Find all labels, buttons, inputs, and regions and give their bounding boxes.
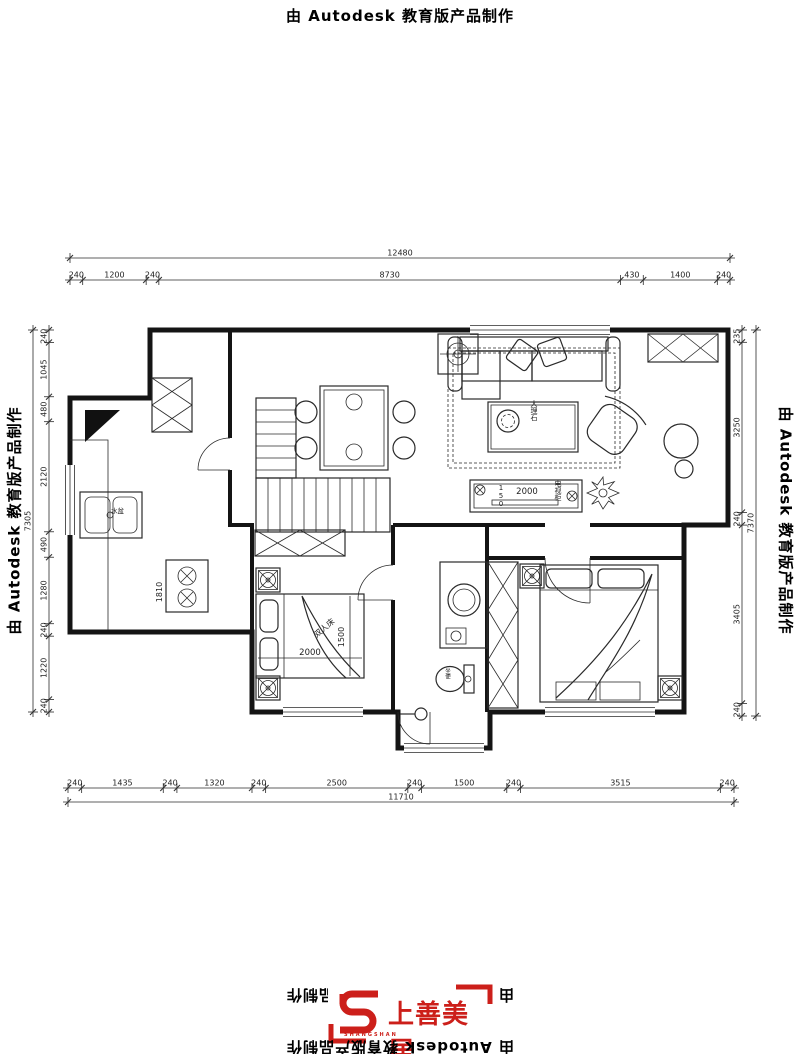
svg-text:240: 240 [40,698,49,713]
dim-left-segments: 2401045480212049012802401220240 [40,325,55,717]
ceiling-lamp-icon [658,676,682,700]
svg-text:1045: 1045 [40,359,49,379]
master-bedroom [488,562,682,708]
tea-table-label: 大理石 [530,399,538,422]
svg-text:11710: 11710 [388,793,413,802]
dim-bottom-segments: 24014352401320240250024015002403515240 [63,779,739,794]
svg-text:240: 240 [407,779,422,788]
vanity-icon [440,562,487,648]
ceiling-lamp-icon [256,676,280,700]
svg-text:8730: 8730 [380,271,400,280]
svg-text:240: 240 [162,779,177,788]
master-bed-icon [540,565,658,702]
tv-cabinet-depth: 150 [497,484,505,508]
svg-text:240: 240 [145,271,160,280]
svg-text:3405: 3405 [733,604,742,624]
svg-text:7305: 7305 [24,511,33,531]
dim-top-overall: 12480 [65,249,735,264]
svg-text:12480: 12480 [387,249,412,258]
window-bedroom1-bottom [283,706,363,718]
toilet-label: 坐便 [444,667,451,681]
tv-cabinet-width: 2000 [516,487,538,497]
kitchen-inner-dim: 1810 [155,582,164,602]
svg-text:240: 240 [716,271,731,280]
column-icon [438,334,478,374]
windows [64,324,655,754]
svg-text:1200: 1200 [104,271,124,280]
svg-text:240: 240 [251,779,266,788]
corner-marker-icon [85,410,120,442]
svg-text:240: 240 [69,271,84,280]
s-glyph [340,994,378,1030]
svg-text:240: 240 [733,702,742,717]
wardrobe-icon [488,562,518,708]
chair-icon [393,437,415,459]
svg-text:430: 430 [624,271,639,280]
bedroom1: 2000 1500 双人床 [255,530,364,700]
svg-text:1220: 1220 [40,658,49,678]
bathroom: 坐便 [436,562,487,693]
floor-lamp-icon [675,460,693,478]
bed1-depth: 1500 [337,627,346,647]
window-bath-bay [404,742,484,754]
svg-text:240: 240 [506,779,521,788]
exterior-walls [70,330,728,748]
closet-icon [255,530,345,556]
svg-text:7370: 7370 [747,513,756,533]
svg-text:240: 240 [720,779,735,788]
svg-text:2120: 2120 [40,467,49,487]
bath-bay-door [398,712,430,744]
window-kitchen-left [64,465,76,535]
svg-text:1400: 1400 [670,271,690,280]
drawing-sheet: 由 Autodesk 教育版产品制作 由 Autodesk 教育版产品制作 由 … [0,0,800,1054]
svg-text:240: 240 [40,622,49,637]
ceiling-lamp-icon [256,568,280,592]
svg-text:1280: 1280 [40,580,49,600]
window-master-bottom [545,706,655,718]
dim-left-overall: 7305 [24,325,39,717]
chair-icon [295,437,317,459]
svg-text:480: 480 [40,402,49,417]
living-room: 大理石 2000 150 电视柜 [438,334,718,512]
svg-text:240: 240 [67,779,82,788]
tv-cabinet-label: 电视柜 [554,479,562,502]
svg-text:240: 240 [40,329,49,344]
svg-text:1320: 1320 [204,779,224,788]
bedroom1-door [358,565,393,600]
svg-text:3515: 3515 [610,779,630,788]
svg-text:2500: 2500 [327,779,347,788]
svg-text:490: 490 [40,537,49,552]
plant-icon [587,477,619,509]
stove-icon [166,560,208,612]
chair-icon [295,401,317,423]
sink-icon [80,492,142,538]
closet-top-right-icon [648,334,718,362]
dining-set [295,386,415,470]
dim-right-overall: 7370 [747,325,762,721]
autodesk-banner-bottom-lower: 由 Autodesk 教育版产品制作 [0,1037,800,1054]
shangshan-logo: 上善美居 SHANGSHAN [328,984,494,1044]
dim-right-segments: 23532502403405240 [733,325,748,721]
kitchen: 水盆 1810 [70,378,208,630]
stairs [256,398,390,532]
tall-cabinet-icon [152,378,192,432]
door-handle-icon [400,708,427,720]
svg-text:240: 240 [733,511,742,526]
bed1-icon [256,594,364,678]
armchair-icon [580,392,649,461]
dim-bottom-overall: 11710 [63,793,739,808]
bed1-width: 2000 [299,648,321,658]
dim-top-segments: 240120024087304301400240 [65,271,735,286]
floor-plan: 水盆 1810 [0,0,800,1054]
kitchen-door [198,438,230,470]
toilet-icon [436,665,474,693]
window-living-top [470,324,610,336]
sofa-icon [448,337,620,399]
svg-text:235: 235 [733,329,742,344]
svg-text:1500: 1500 [454,779,474,788]
svg-text:1435: 1435 [112,779,132,788]
chair-icon [393,401,415,423]
floor-lamp-icon [664,424,698,458]
sink-label: 水盆 [111,506,125,515]
svg-text:3250: 3250 [733,417,742,437]
